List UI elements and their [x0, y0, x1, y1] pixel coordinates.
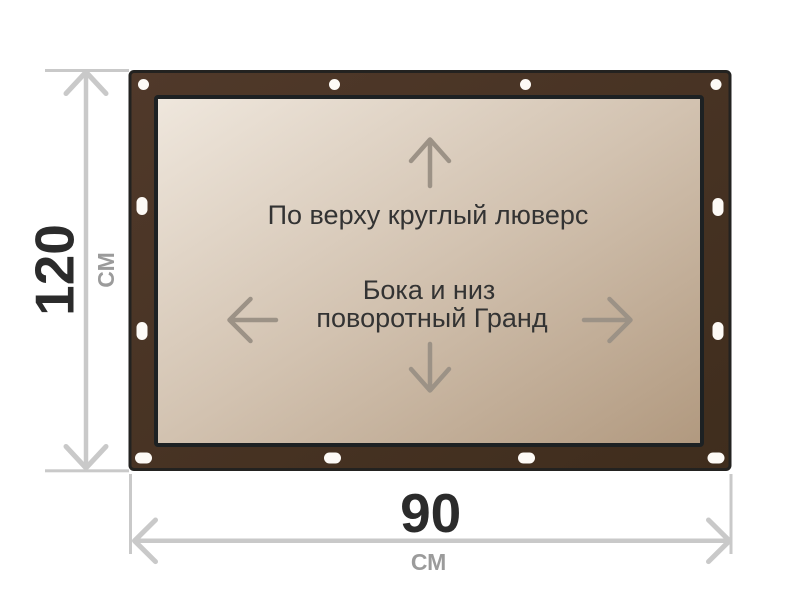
svg-text:120: 120 — [24, 224, 86, 316]
svg-text:По верху круглый люверс: По верху круглый люверс — [268, 200, 589, 230]
svg-text:90: 90 — [400, 482, 461, 544]
svg-text:поворотный Гранд: поворотный Гранд — [316, 303, 547, 333]
svg-text:СМ: СМ — [411, 549, 446, 575]
svg-text:Бока и низ: Бока и низ — [363, 275, 496, 305]
svg-text:СМ: СМ — [93, 252, 119, 287]
